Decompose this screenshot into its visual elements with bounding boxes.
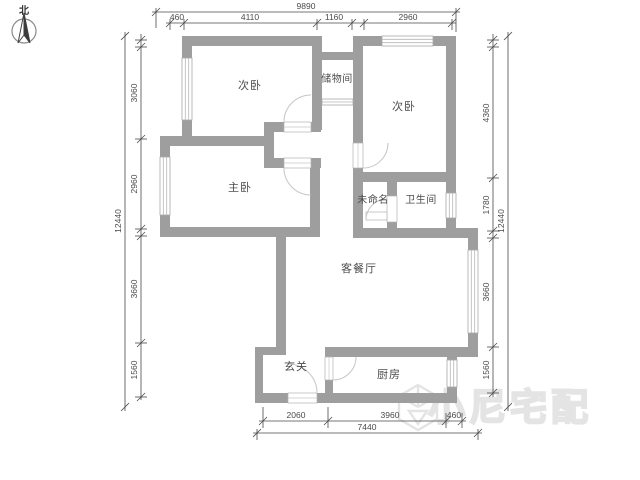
wall-bottom <box>255 393 457 403</box>
wall-top-left <box>182 36 322 46</box>
door-kitchen-icon <box>325 357 333 380</box>
dim-right-seg-2: 3660 <box>481 282 491 301</box>
dim-right-seg-1: 1780 <box>481 195 491 214</box>
dim-left-seg-0: 3060 <box>129 83 139 102</box>
dim-top-seg-0: 460 <box>170 12 184 22</box>
dim-left-seg-3: 1560 <box>129 360 139 379</box>
window-bedroom1-icon <box>182 58 192 120</box>
room-label-bathroom: 卫生间 <box>405 193 437 206</box>
dim-left-seg-1: 2960 <box>129 174 139 193</box>
north-arrow-right-icon <box>24 13 30 43</box>
dim-right-seg-0: 4360 <box>481 103 491 122</box>
wall-kitchen-top <box>325 347 478 357</box>
door-master-icon <box>284 158 311 168</box>
window-kitchen-icon <box>447 360 457 387</box>
room-label-bedroom-left: 次卧 <box>238 78 262 92</box>
window-living-icon <box>468 250 478 333</box>
dim-bottom-seg-1: 3960 <box>381 410 400 420</box>
room-labels: 次卧 储物间 次卧 主卧 未命名 卫生间 客餐厅 玄关 厨房 <box>228 72 437 381</box>
window-master-icon <box>160 157 170 215</box>
door-arc-master <box>284 168 311 195</box>
wall-entry-left <box>255 347 263 403</box>
wall-bedroom1-master-divider <box>160 136 274 146</box>
dim-right-total: 12440 <box>496 209 506 233</box>
room-label-bedroom-right: 次卧 <box>392 99 416 113</box>
door-arc-kitchen <box>333 357 356 380</box>
wall-living-left <box>276 237 286 355</box>
dim-left-total: 12440 <box>113 209 123 233</box>
floor-plan-canvas: 小尼宅配 北 <box>0 0 640 480</box>
door-arc-bedroom2 <box>363 143 388 168</box>
compass: 北 <box>12 4 36 43</box>
door-arc-bedroom1 <box>284 95 311 122</box>
dim-top-total: 9890 <box>297 1 316 11</box>
watermark: 小尼宅配 <box>399 385 592 430</box>
room-label-kitchen: 厨房 <box>377 368 401 381</box>
dim-right-seg-3: 1560 <box>481 360 491 379</box>
dim-left-seg-2: 3660 <box>129 279 139 298</box>
storage-sliding-door-icon <box>322 99 353 105</box>
wall-corridor-left <box>310 158 320 237</box>
wall-master-bottom <box>160 227 320 237</box>
room-label-storage: 储物间 <box>321 72 353 85</box>
wall-bath-top <box>353 172 456 182</box>
wall-storage-top <box>312 52 363 60</box>
room-label-living-dining: 客餐厅 <box>341 261 377 275</box>
dim-bottom-seg-0: 2060 <box>287 410 306 420</box>
dim-top-seg-2: 1160 <box>325 12 344 22</box>
north-arrow-left-icon <box>18 13 24 43</box>
window-bathroom-icon <box>446 193 456 218</box>
wall-bath-bottom <box>353 228 478 238</box>
wall-storage-right <box>353 46 363 238</box>
dim-top-seg-3: 2960 <box>399 12 418 22</box>
door-bedroom1-icon <box>284 122 311 132</box>
dim-top-seg-1: 4110 <box>241 12 260 22</box>
window-bedroom2-icon <box>382 36 433 46</box>
room-label-entry: 玄关 <box>284 359 308 373</box>
dim-bottom-total: 7440 <box>358 422 377 432</box>
walls <box>160 36 478 403</box>
door-entry-icon <box>288 393 317 403</box>
dim-bottom-seg-2: 460 <box>447 410 461 420</box>
door-bedroom2-icon <box>353 143 363 168</box>
room-label-unnamed: 未命名 <box>357 193 389 206</box>
room-label-master: 主卧 <box>228 181 252 194</box>
